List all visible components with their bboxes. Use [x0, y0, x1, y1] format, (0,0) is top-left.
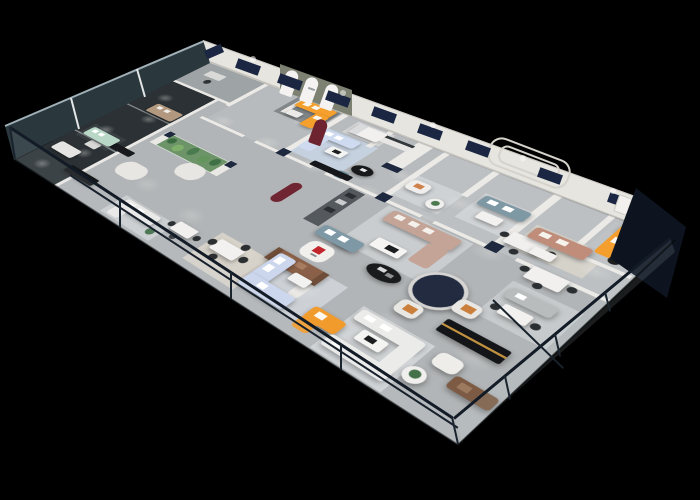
wall-art-dark-panel: [632, 201, 649, 220]
dining-chair: [167, 233, 179, 240]
wall-navy-cap: [371, 106, 397, 124]
wall-spot-light: [250, 56, 256, 62]
wall-navy-cap: [204, 44, 224, 60]
wall-art-white-panel: [613, 194, 632, 216]
nw-glass-mullion: [136, 69, 146, 98]
dining-chair: [191, 235, 203, 242]
nw-glass-mullion: [70, 98, 80, 129]
wall-navy-cap: [465, 140, 491, 158]
blue-brand-mark: [286, 79, 292, 84]
wall-navy-cap: [417, 123, 443, 141]
wall-art-glyph: [638, 208, 643, 213]
showroom-floor-plane: [15, 62, 675, 445]
wall-spot-light: [430, 122, 436, 128]
wall-spot-light: [520, 155, 526, 161]
arch-caption-line: [308, 87, 315, 91]
wall-navy-cap: [537, 167, 563, 185]
brown-bench: [444, 375, 500, 412]
glass-mullion: [9, 127, 16, 159]
wall-spot-light: [610, 188, 616, 194]
wall-spot-light: [340, 90, 346, 96]
wall-navy-cap: [325, 90, 351, 108]
display-partition-dark: [303, 188, 365, 227]
maroon-curved-panel: [268, 181, 305, 203]
showroom-render-canvas: [0, 0, 700, 500]
wall-navy-cap: [607, 192, 633, 210]
